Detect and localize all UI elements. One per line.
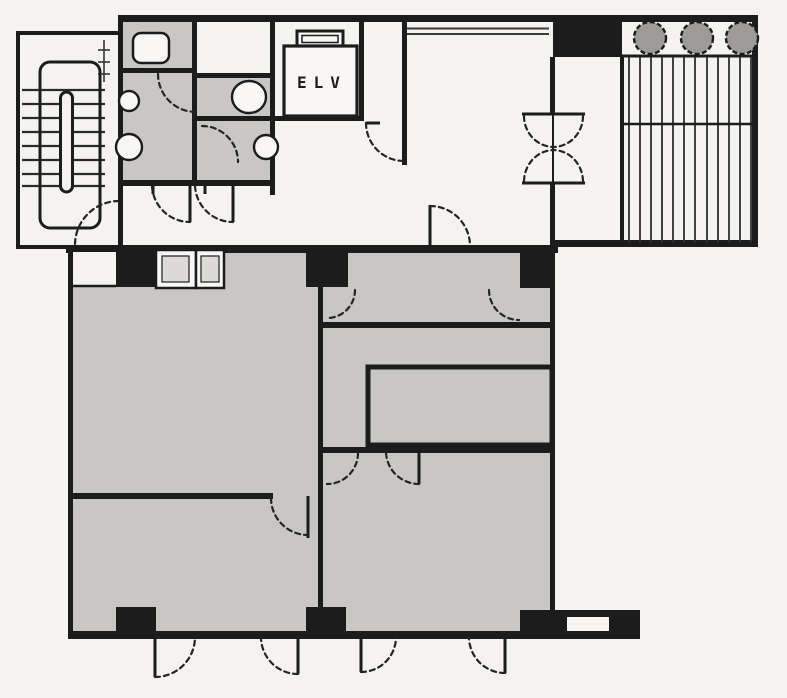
toilet-fixture-icon [232, 81, 266, 113]
entry-block-window [566, 616, 610, 632]
door-swing-icon [152, 186, 190, 222]
double-swing-door-icon [522, 114, 585, 183]
lobby-wall [402, 18, 407, 165]
pier [116, 607, 156, 634]
main-room [407, 29, 549, 247]
wall-opening [73, 252, 116, 285]
door-swing-icon [469, 637, 505, 673]
lower-left-room [71, 497, 320, 634]
interior-wall [318, 447, 555, 453]
sink-fixture-icon [119, 91, 139, 111]
floor-plan-drawing: ELV [0, 0, 787, 698]
pier [306, 607, 346, 634]
louver-left-wall [620, 57, 624, 247]
door-swing-icon [366, 123, 404, 161]
exterior-doors [155, 637, 505, 677]
louver-area [622, 22, 758, 243]
pier [306, 250, 348, 287]
toilet-fixture-icon [133, 33, 169, 63]
window-symbol [162, 256, 189, 282]
main-room-right-wall [550, 182, 555, 247]
stair-newel [61, 92, 73, 192]
toilet-partition [192, 18, 197, 182]
main-room-right-wall [550, 57, 555, 115]
door-swing-icon [430, 206, 470, 246]
planter-icon [634, 22, 666, 54]
door-swing-icon [155, 637, 195, 677]
elevator-core: ELV [284, 31, 404, 161]
right-wall [752, 15, 758, 247]
left-wall [68, 247, 73, 638]
door-swing-icon [261, 637, 298, 674]
toilet-fixture-icon [254, 135, 278, 159]
toilet-partition [122, 68, 195, 73]
toilet-partition [195, 73, 275, 78]
elevator-shaft-wall [359, 18, 364, 121]
solid-wall-segment [553, 18, 622, 57]
lower-right-room [321, 449, 552, 633]
toilet-partition [195, 116, 275, 121]
top-wall [118, 15, 758, 22]
pier [116, 250, 157, 287]
louver-grille-icon [629, 57, 751, 243]
door-swing-icon [195, 186, 233, 222]
toilet-fixture-icon [116, 134, 142, 160]
interior-wall [318, 322, 555, 328]
door-swing-icon [361, 637, 396, 672]
toilet-right-wall [270, 18, 275, 195]
vestibule-bottom-wall [553, 240, 758, 247]
toilet-room [122, 72, 195, 182]
planter-icon [726, 22, 758, 54]
window-symbol [407, 29, 549, 35]
window-symbol [201, 256, 219, 282]
pier [520, 247, 555, 288]
stair-toilet-wall [118, 15, 123, 247]
floor-plan-sheet: ELV [0, 0, 787, 698]
inner-enclosure [368, 367, 552, 445]
toilet-bottom-wall [118, 180, 275, 186]
interior-wall [71, 493, 273, 499]
elevator-label: ELV [297, 73, 347, 92]
stairwell [18, 33, 120, 247]
corridor-room [321, 250, 552, 324]
interior-wall [318, 252, 323, 638]
planter-icon [681, 22, 713, 54]
